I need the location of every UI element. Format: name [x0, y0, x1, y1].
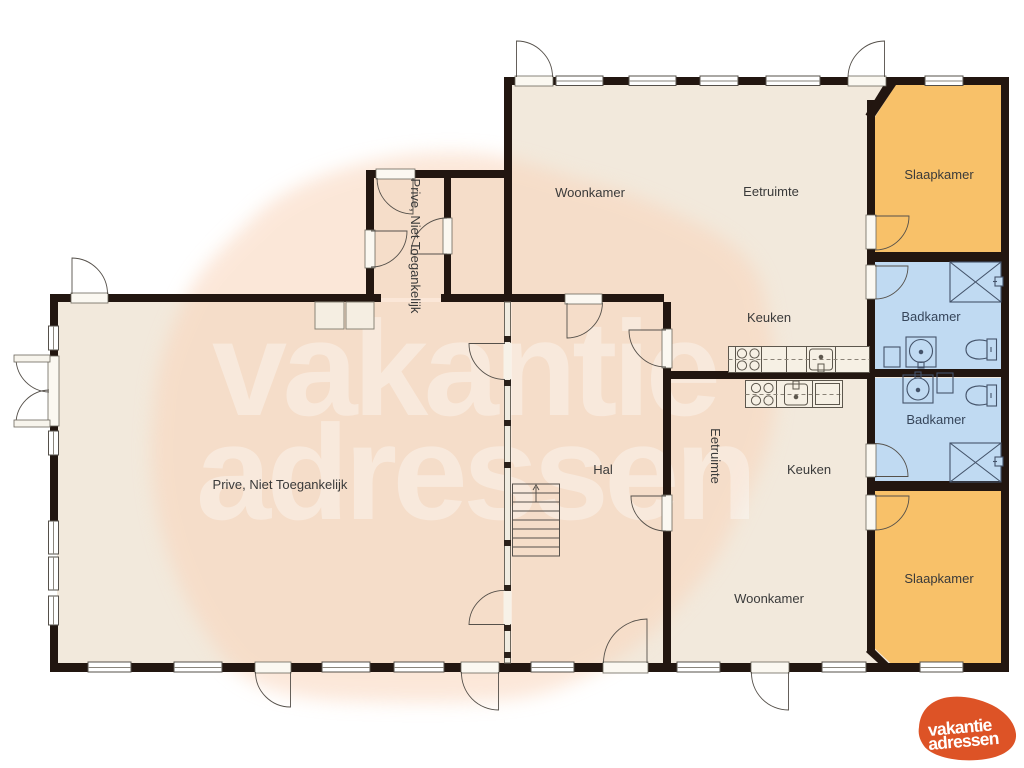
- svg-text:Woonkamer: Woonkamer: [555, 185, 626, 200]
- svg-text:Eetruimte: Eetruimte: [743, 184, 799, 199]
- svg-text:Woonkamer: Woonkamer: [734, 591, 805, 606]
- svg-text:Eetruimte: Eetruimte: [708, 428, 723, 484]
- svg-text:Prive, Niet Toegankelijk: Prive, Niet Toegankelijk: [213, 477, 348, 492]
- svg-text:Slaapkamer: Slaapkamer: [904, 167, 974, 182]
- svg-text:Keuken: Keuken: [787, 462, 831, 477]
- svg-text:Keuken: Keuken: [747, 310, 791, 325]
- svg-text:Badkamer: Badkamer: [901, 309, 961, 324]
- svg-text:Prive, Niet Toegankelijk: Prive, Niet Toegankelijk: [408, 179, 423, 314]
- svg-text:Hal: Hal: [593, 462, 613, 477]
- svg-text:Slaapkamer: Slaapkamer: [904, 571, 974, 586]
- svg-text:Badkamer: Badkamer: [906, 412, 966, 427]
